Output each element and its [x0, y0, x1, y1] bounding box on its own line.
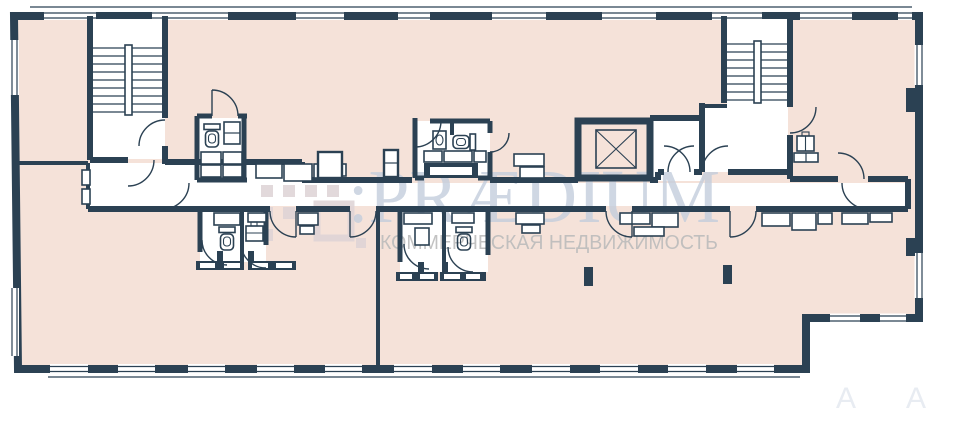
pilaster [906, 88, 915, 112]
counter [201, 165, 221, 177]
counter [223, 152, 242, 164]
entry-lobby [88, 163, 165, 208]
counter [870, 213, 892, 222]
counter [298, 213, 318, 225]
counter [214, 213, 240, 225]
stairwell-left [93, 45, 165, 115]
counter [201, 152, 221, 164]
vanity-top [430, 167, 472, 175]
closet [318, 152, 342, 178]
watermark-tagline-text: КОММЕРЧЕСКАЯ НЕДВИЖИМОСТЬ [380, 232, 718, 254]
stair-handrail [754, 41, 761, 103]
floor-plan-canvas: :PRÆDIUM КОММЕРЧЕСКАЯ НЕДВИЖИМОСТЬ [0, 0, 962, 423]
sink [415, 228, 429, 245]
stair-handrail [125, 45, 132, 115]
right-room-fixtures [794, 132, 818, 162]
sink [433, 131, 446, 149]
counter [452, 213, 474, 223]
counter [520, 167, 544, 178]
pilaster [906, 238, 915, 256]
column [723, 265, 732, 284]
window-niche [82, 170, 90, 185]
counter [514, 154, 544, 166]
counter [652, 213, 678, 227]
floor-plan-svg: :PRÆDIUM КОММЕРЧЕСКАЯ НЕДВИЖИМОСТЬ [0, 0, 962, 423]
counter [792, 213, 816, 230]
counter [474, 151, 486, 162]
counter [522, 225, 540, 233]
counter [256, 164, 282, 178]
counter [620, 213, 650, 224]
counter [223, 165, 242, 177]
counter [424, 151, 442, 162]
faint-a-mark: А [906, 382, 926, 415]
counter [818, 213, 832, 224]
counter [300, 226, 314, 234]
counter [284, 164, 312, 181]
counter [404, 213, 432, 224]
window-niche [82, 189, 90, 204]
counter [842, 213, 868, 224]
counter [516, 213, 544, 224]
faint-a-mark: А [836, 382, 856, 415]
counter [762, 213, 790, 226]
faint-corner-marks: А А [836, 382, 926, 415]
column [584, 267, 593, 286]
counter [634, 227, 664, 236]
counter [248, 213, 266, 222]
counter [444, 151, 472, 162]
